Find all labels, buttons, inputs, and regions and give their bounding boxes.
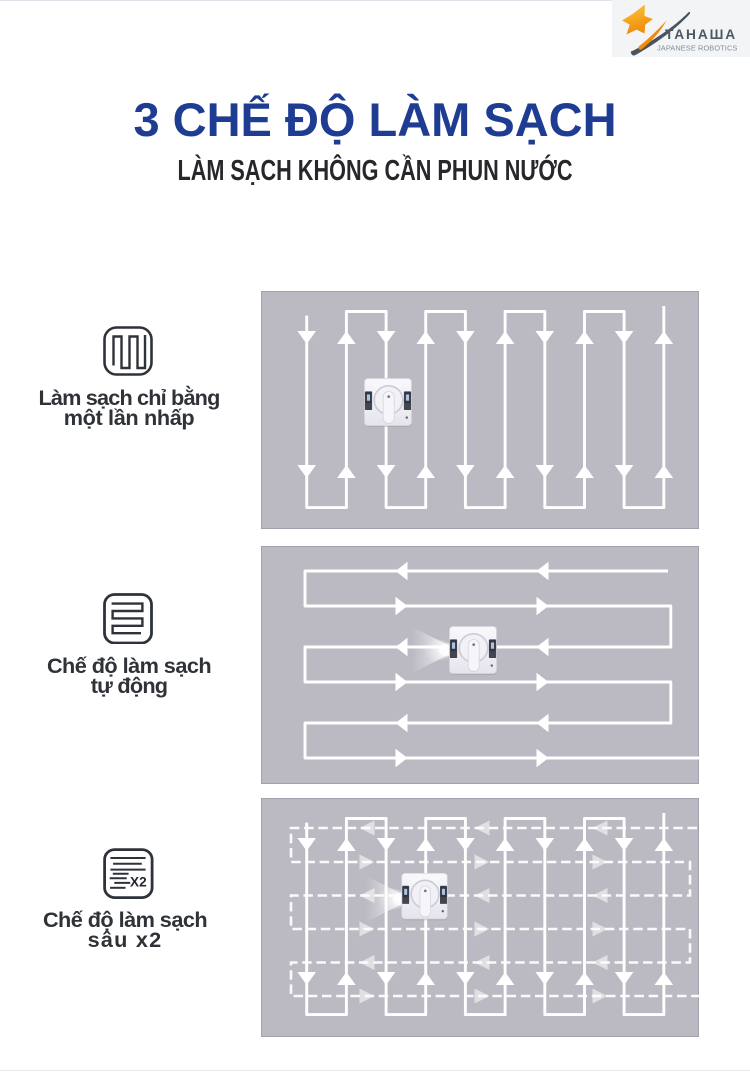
- svg-text:TAHAШA: TAHAШA: [665, 27, 737, 42]
- svg-text:JAPANESE ROBOTICS: JAPANESE ROBOTICS: [657, 44, 737, 53]
- svg-text:X2: X2: [130, 875, 147, 890]
